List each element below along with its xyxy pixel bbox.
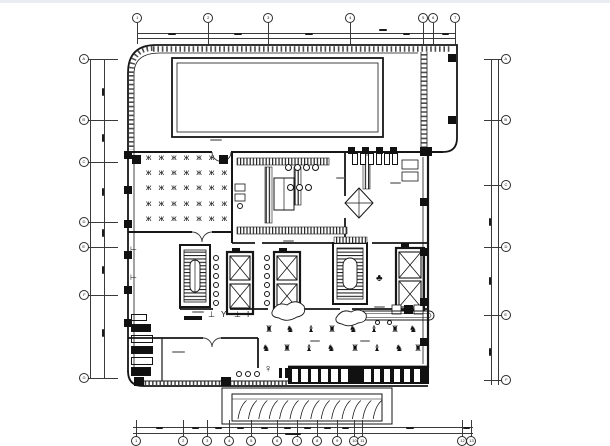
room-label-mark — [374, 306, 385, 308]
room-label-mark — [283, 240, 294, 242]
equipment-icon: ⊥ — [208, 311, 215, 319]
equipment-icon: ♣ — [376, 274, 383, 284]
dining-table-icon: ж — [222, 169, 227, 177]
dim-text-mark — [102, 329, 104, 337]
double-door-diamond — [345, 188, 373, 218]
dining-table-icon: ж — [196, 200, 201, 208]
step-tread — [238, 401, 247, 420]
dining-table-icon: ж — [159, 184, 164, 192]
grid-tick-left — [86, 295, 118, 296]
dining-table-icon: ж — [159, 169, 164, 177]
locker-unit — [131, 314, 147, 321]
grid-bubble-bottom: 5 — [246, 436, 256, 446]
mullion-glass-cell — [341, 369, 348, 382]
grid-bubble-right: B — [501, 115, 511, 125]
column-block — [124, 220, 132, 228]
fixture-circle — [264, 282, 270, 288]
column-block — [279, 368, 282, 378]
grid-bubble-bottom: 3 — [202, 436, 212, 446]
locker-unit — [131, 335, 153, 343]
grid-bubble-bottom: 7 — [292, 436, 302, 446]
wc-stall — [368, 153, 374, 165]
grid-bubble-top: 6 — [428, 13, 438, 23]
grid-tick-left — [86, 120, 118, 121]
dim-text-mark — [234, 33, 242, 35]
entry-steps — [222, 388, 392, 424]
column-block — [134, 377, 144, 386]
stair-west — [180, 245, 210, 307]
grid-tick-top — [423, 23, 424, 44]
equipment-icon: ♜ — [328, 325, 336, 334]
equipment-icon: ♞ — [262, 344, 270, 353]
dim-text-mark — [168, 33, 176, 35]
grid-bubble-right: C — [501, 180, 511, 190]
mullion-glass-cell — [394, 369, 401, 382]
grid-tick-top — [268, 23, 269, 44]
dining-table-icon: ж — [171, 200, 176, 208]
fixture-circle — [213, 282, 219, 288]
fixture-circle — [312, 164, 319, 171]
fixture-circle — [264, 291, 270, 297]
locker-unit — [131, 357, 153, 365]
dining-table-icon: ж — [171, 154, 176, 162]
wc-stall — [384, 153, 390, 165]
dining-table-icon: ж — [184, 200, 189, 208]
step-tread — [280, 401, 289, 420]
dim-text-mark — [305, 33, 313, 35]
dining-table-icon: ж — [196, 184, 201, 192]
grid-tick-top — [433, 23, 434, 44]
dim-text-mark — [403, 33, 410, 35]
grid-bubble-left: A — [79, 54, 89, 64]
dim-text-mark — [284, 427, 291, 429]
fixture-circle — [303, 164, 310, 171]
dim-text-mark — [102, 229, 104, 237]
locker-unit — [131, 324, 151, 332]
step-tread — [332, 401, 341, 420]
mullion-glass-cell — [321, 369, 328, 382]
dim-text-mark — [324, 427, 331, 429]
dining-table-icon: ж — [209, 184, 214, 192]
step-tread — [363, 401, 372, 420]
grid-bubble-top: 1 — [132, 13, 142, 23]
stair-east — [333, 237, 367, 304]
equipment-icon: ♜ — [283, 344, 291, 353]
fixture-circle — [264, 264, 270, 270]
locker-unit — [131, 346, 153, 354]
grid-bubble-top: 5 — [418, 13, 428, 23]
dim-line-right — [498, 59, 499, 385]
grid-tick-top — [455, 23, 456, 44]
grid-bubble-bottom: 9 — [332, 436, 342, 446]
dim-text-mark — [379, 29, 387, 31]
equipment-icon: ♝ — [370, 325, 378, 334]
wc-stall — [392, 153, 398, 165]
grid-tick-left — [86, 247, 118, 248]
dim-text-mark — [102, 266, 104, 274]
dining-table-icon: ж — [184, 154, 189, 162]
equipment-icon: I — [247, 311, 249, 319]
mullion-glass-cell — [331, 369, 338, 382]
dim-line-left — [90, 59, 91, 378]
dining-table-icon: ж — [146, 215, 151, 223]
grid-bubble-right: D — [501, 242, 511, 252]
kitchen-counters — [235, 155, 423, 314]
dim-text-mark — [261, 427, 268, 429]
dining-table-icon: ж — [184, 215, 189, 223]
equipment-icon: ♞ — [395, 344, 403, 353]
dining-table-icon: ж — [209, 169, 214, 177]
column-block — [132, 155, 141, 164]
dining-table-icon: ж — [222, 215, 227, 223]
room-label-mark — [390, 182, 401, 184]
room-label-mark — [360, 340, 370, 342]
grid-bubble-left: G — [79, 373, 89, 383]
wc-stall — [360, 153, 366, 165]
grid-bubble-left: F — [79, 290, 89, 300]
equipment-icon: ⊢ — [130, 246, 137, 254]
fixture-circle — [213, 273, 219, 279]
grid-tick-left — [86, 162, 118, 163]
dim-text-mark — [406, 427, 414, 429]
equipment-icon: ♝ — [305, 344, 313, 353]
dim-line-bottom — [133, 433, 473, 434]
dining-table-icon: ж — [196, 169, 201, 177]
step-tread — [373, 401, 382, 420]
wc-stall — [352, 153, 358, 165]
equipment-icon: ♞ — [327, 344, 335, 353]
dim-text-mark — [215, 427, 222, 429]
room-label-mark — [210, 139, 222, 141]
dining-table-icon: ж — [209, 154, 214, 162]
grid-bubble-top: 3 — [263, 13, 273, 23]
dim-text-mark — [442, 33, 449, 35]
grid-bubble-left: C — [79, 157, 89, 167]
equipment-icon: ♜ — [414, 344, 422, 353]
step-tread — [269, 401, 278, 420]
column-block — [124, 151, 132, 159]
grid-bubble-top: 7 — [450, 13, 460, 23]
grid-bubble-right: A — [501, 54, 511, 64]
dining-table-icon: ж — [184, 169, 189, 177]
fixture-circle — [254, 371, 260, 377]
step-tread — [352, 401, 361, 420]
mullion-glass-cell — [292, 369, 299, 382]
grid-tick-left — [86, 222, 118, 223]
column-block — [232, 248, 240, 252]
column-block — [279, 248, 287, 252]
grid-bubble-left: B — [79, 115, 89, 125]
column-block — [448, 54, 456, 62]
fixture-circle — [213, 264, 219, 270]
grid-bubble-bottom: 2 — [178, 436, 188, 446]
grid-bubble-right: E — [501, 310, 511, 320]
fixture-circle — [305, 184, 312, 191]
step-tread — [248, 401, 257, 420]
column-block — [420, 147, 432, 156]
grid-bubble-left: E — [79, 242, 89, 252]
step-tread — [290, 401, 299, 420]
dim-text-mark — [285, 433, 301, 435]
fixture-circle — [213, 255, 219, 261]
room-label-mark — [192, 311, 204, 313]
swimming-pool — [172, 52, 427, 150]
grid-bubble-right: F — [501, 375, 511, 385]
equipment-icon: Y — [221, 311, 226, 319]
dim-line-right — [491, 59, 492, 385]
dining-table-icon: ж — [159, 154, 164, 162]
mullion-glass-cell — [374, 369, 381, 382]
dim-text-mark — [489, 277, 491, 285]
dining-table-icon: ж — [171, 169, 176, 177]
dim-text-mark — [304, 427, 311, 429]
locker-unit — [131, 367, 151, 376]
equipment-icon: ♞ — [349, 325, 357, 334]
mullion-glass-cell — [384, 369, 391, 382]
step-tread — [259, 401, 268, 420]
grid-tick-left — [86, 59, 118, 60]
dim-line-left — [104, 59, 105, 378]
dining-table-icon: ж — [159, 215, 164, 223]
grid-tick-left — [86, 378, 118, 379]
dining-table-icon: ж — [171, 215, 176, 223]
dining-table-icon: ж — [184, 184, 189, 192]
mullion-glass-cell — [301, 369, 308, 382]
fixture-circle — [213, 300, 219, 306]
dining-table-icon: ж — [159, 200, 164, 208]
dining-table-icon: ж — [209, 215, 214, 223]
grid-tick-top — [350, 23, 351, 44]
grid-bubble-bottom: 6 — [272, 436, 282, 446]
elevator-cores — [227, 248, 424, 314]
equipment-icon: ♀ — [264, 364, 272, 375]
dim-text-mark — [463, 427, 470, 429]
dining-table-icon: ж — [209, 200, 214, 208]
mullion-glass-cell — [414, 369, 421, 382]
fixture-circle — [264, 300, 270, 306]
curtain-wall-dotted-band — [132, 49, 452, 151]
fixture-circle — [245, 371, 251, 377]
dining-table-icon: ж — [196, 154, 201, 162]
fixture-circle — [264, 273, 270, 279]
equipment-icon: ♜ — [265, 325, 273, 334]
step-tread — [321, 401, 330, 420]
dining-table-icon: ж — [196, 215, 201, 223]
fixture-circle — [294, 164, 301, 171]
fixture-circle — [213, 291, 219, 297]
column-block — [420, 298, 428, 306]
room-label-mark — [172, 351, 185, 353]
dim-text-mark — [342, 427, 349, 429]
room-label-mark — [310, 340, 320, 342]
column-block — [124, 286, 132, 294]
fixture-circle — [287, 184, 294, 191]
dim-text-mark — [192, 427, 199, 429]
dining-table-icon: ж — [146, 200, 151, 208]
dining-table-icon: ж — [222, 154, 227, 162]
dim-line-top — [137, 38, 455, 39]
column-block — [401, 243, 409, 247]
dining-table-icon: ж — [146, 184, 151, 192]
column-block — [221, 377, 231, 386]
dim-text-mark — [102, 88, 104, 96]
equipment-icon: ⊢ — [130, 274, 137, 282]
dining-table-icon: ж — [146, 154, 151, 162]
column-block — [420, 198, 428, 206]
dining-table-icon: ж — [222, 200, 227, 208]
step-tread — [311, 401, 320, 420]
dim-text-mark — [102, 134, 104, 142]
room-label-mark — [336, 177, 345, 179]
dim-text-mark — [102, 188, 104, 196]
column-block — [420, 248, 428, 256]
fixture-circle — [236, 371, 242, 377]
column-block — [184, 316, 202, 320]
grid-bubble-bottom: 8 — [312, 436, 322, 446]
mullion-glass-cell — [404, 369, 411, 382]
grid-bubble-bottom: 11 — [357, 436, 367, 446]
dining-table-icon: ж — [171, 184, 176, 192]
mullion-glass-cell — [311, 369, 318, 382]
equipment-icon: ♝ — [307, 325, 315, 334]
fixture-circle — [296, 184, 303, 191]
column-block — [404, 305, 413, 314]
dim-text-mark — [237, 427, 244, 429]
mullion-glass-cell — [364, 369, 371, 382]
grid-bubble-left: D — [79, 217, 89, 227]
equipment-icon: ♜ — [351, 344, 359, 353]
grid-bubble-bottom: 1 — [131, 436, 141, 446]
fixture-circle — [285, 164, 292, 171]
equipment-icon: ♝ — [373, 344, 381, 353]
dim-text-mark — [156, 427, 163, 429]
fixture-circle — [237, 203, 243, 209]
grid-bubble-bottom: 4 — [224, 436, 234, 446]
step-tread — [342, 401, 351, 420]
grid-tick-top — [208, 23, 209, 44]
column-block — [448, 116, 456, 124]
grid-bubble-top: 4 — [345, 13, 355, 23]
equipment-icon: ♜ — [391, 325, 399, 334]
entry-step-treads — [238, 401, 382, 420]
wc-stall — [376, 153, 382, 165]
dim-text-mark — [489, 348, 491, 356]
column-block — [124, 186, 132, 194]
equipment-icon: ♞ — [409, 325, 417, 334]
grid-bubble-bottom: 13 — [466, 436, 476, 446]
equipment-icon: ⊥ — [234, 311, 241, 319]
grid-tick-top — [137, 23, 138, 44]
dining-table-icon: ж — [146, 169, 151, 177]
fixture-circle — [264, 255, 270, 261]
equipment-icon: ♞ — [286, 325, 294, 334]
dim-text-mark — [489, 218, 491, 226]
dining-table-icon: ж — [222, 184, 227, 192]
floor-plan-canvas: 123456712345678910111213ABCDEFGABCDEF♜♞♝… — [0, 0, 610, 446]
lounge-sofas — [272, 302, 366, 326]
step-tread — [300, 401, 309, 420]
grid-bubble-top: 2 — [203, 13, 213, 23]
